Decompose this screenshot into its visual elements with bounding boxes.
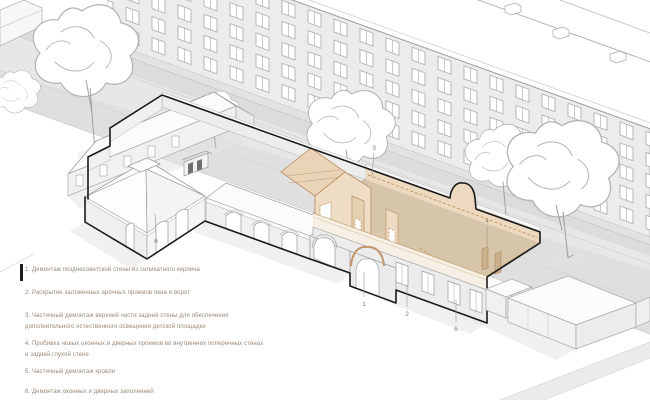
legend-cursor-bar bbox=[20, 264, 23, 281]
legend-item-3: 3. Частичный демонтаж верхней части задн… bbox=[25, 311, 335, 333]
legend-item-6: 6. Демонтаж оконных и дверных заполнений bbox=[25, 387, 335, 398]
legend-item-2: 2. Раскрытие заложенных арочных проемов … bbox=[25, 288, 335, 299]
road bbox=[500, 342, 650, 400]
roof-vent-boxes bbox=[505, 3, 626, 63]
callout-4: 4 bbox=[485, 218, 489, 225]
callout-2: 2 bbox=[405, 311, 409, 318]
demolition-axonometric-diagram: 3 4 1 2 6 6 1. Демонтаж позднесоветской … bbox=[0, 0, 650, 400]
wall-stub bbox=[482, 247, 488, 270]
legend: 1. Демонтаж позднесоветской стены из сил… bbox=[25, 265, 335, 398]
callout-6-left: 6 bbox=[154, 238, 158, 245]
reopened-arch-opening bbox=[356, 259, 379, 297]
callout-6-right: 6 bbox=[454, 326, 458, 333]
legend-item-1: 1. Демонтаж позднесоветской стены из сил… bbox=[25, 265, 335, 276]
roof-back-edge bbox=[560, 0, 650, 33]
legend-item-4: 4. Пробивка новых оконных и дверных прое… bbox=[25, 339, 335, 361]
callout-1: 1 bbox=[362, 301, 366, 308]
callout-3: 3 bbox=[372, 145, 376, 152]
legend-item-5: 5. Частичный демонтаж кровли bbox=[25, 367, 335, 378]
